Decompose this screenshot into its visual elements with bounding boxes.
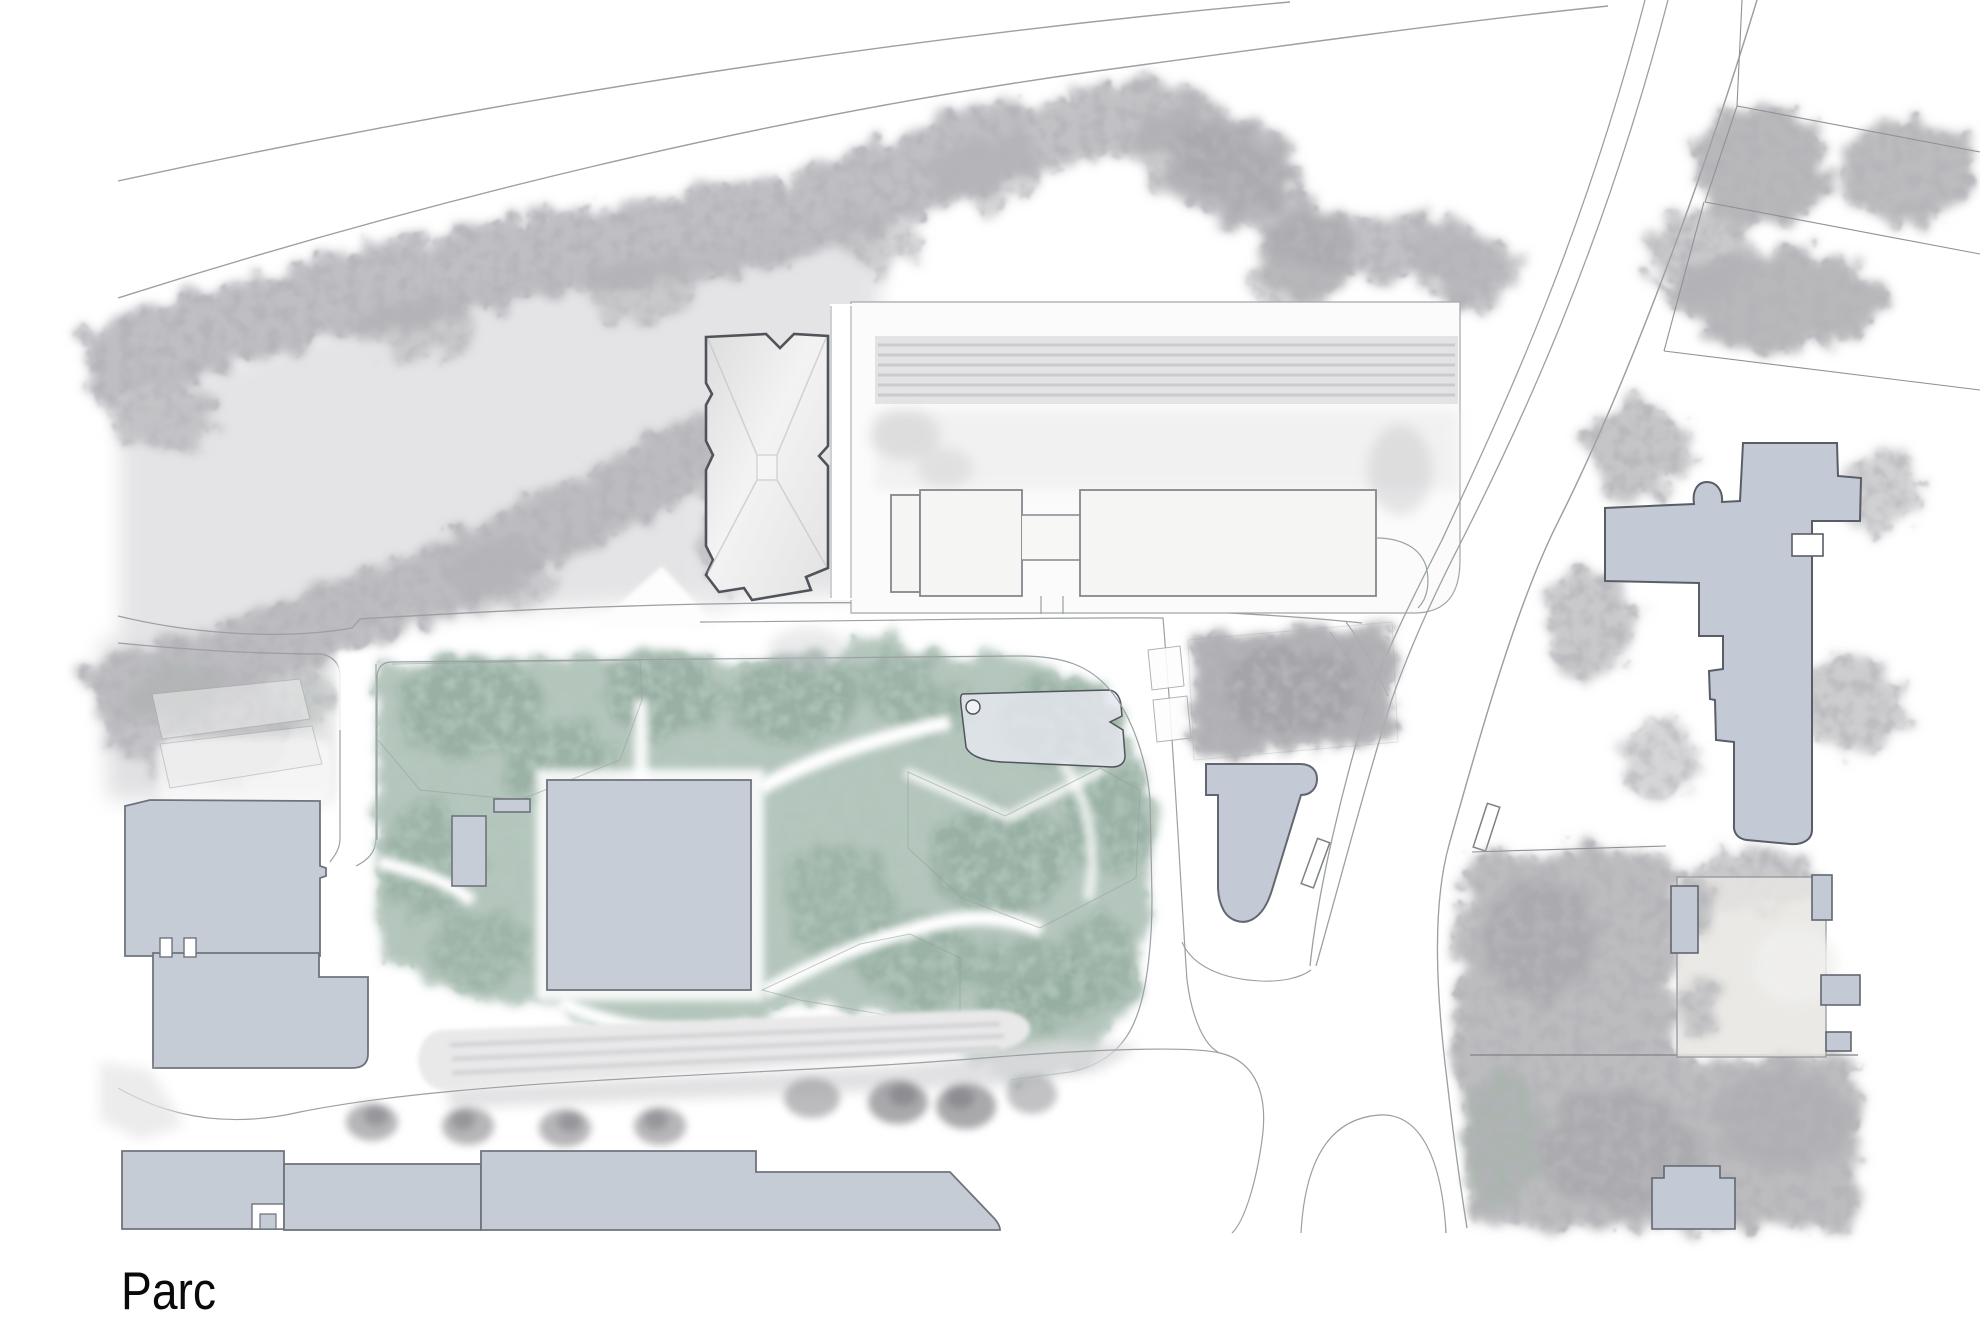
svg-text:Parc: Parc xyxy=(121,1262,216,1321)
